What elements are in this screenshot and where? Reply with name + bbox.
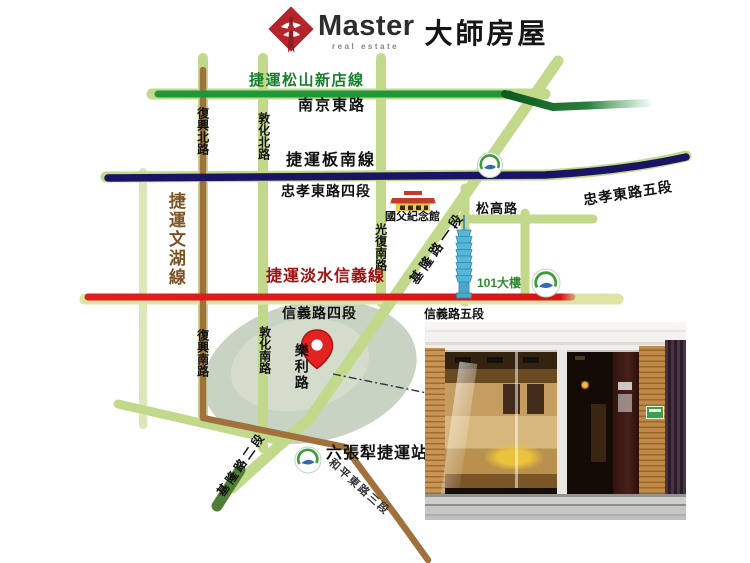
- building-photo: [425, 322, 686, 520]
- label-mrt-tamsui-xinyi: 捷運淡水信義線: [266, 269, 385, 286]
- label-memorial-hall: 國父紀念館: [385, 212, 440, 224]
- label-road-xinyi-4: 信義路四段: [282, 306, 357, 321]
- label-road-fuxing-n: 復興北路: [196, 107, 209, 155]
- label-road-guangfu-s: 光復南路: [374, 223, 387, 271]
- label-road-leli: 樂利路: [294, 343, 309, 391]
- address-plate: [646, 406, 664, 419]
- brand-name-cjk: 大師房屋: [425, 12, 549, 52]
- label-road-dunhua-s: 敦化南路: [258, 326, 271, 374]
- wall-sign: [618, 394, 632, 412]
- photo-storefront-glass: [445, 352, 559, 494]
- photo-brick-left: [425, 348, 445, 498]
- brand-diamond-icon: [268, 6, 314, 56]
- label-road-xinyi-5: 信義路五段: [424, 308, 484, 321]
- photo-dark-door-wall: [613, 352, 639, 494]
- wall-sign: [618, 382, 632, 390]
- glass-reflection-car: [485, 444, 543, 470]
- ceiling-spotlight: [523, 357, 539, 363]
- map-page: Master real estate 大師房屋 捷運松山新店線 南京東路 復興北…: [0, 0, 750, 563]
- mrt-songshan-xindian-line: [158, 94, 648, 107]
- label-road-dunhua-n: 敦化北路: [257, 112, 270, 160]
- corridor-doorway: [591, 404, 606, 462]
- label-liuzhangli-station: 六張犁捷運站: [326, 446, 428, 463]
- photo-brick-right: [639, 346, 665, 498]
- brand-tagline: real estate: [332, 43, 415, 51]
- label-tower-101: 101大樓: [477, 277, 521, 290]
- interior-artwork: [527, 384, 544, 414]
- ceiling-spotlight: [487, 357, 503, 363]
- label-mrt-songshan-xindian: 捷運松山新店線: [249, 73, 365, 89]
- brand-name: Master: [318, 12, 415, 41]
- corridor-lamp: [581, 380, 589, 390]
- photo-white-pillar: [557, 350, 567, 496]
- photo-entrance-corridor: [567, 352, 613, 494]
- label-road-songgao: 松高路: [476, 202, 518, 216]
- label-mrt-bannan: 捷運板南線: [286, 153, 376, 170]
- label-road-nanjing-e: 南京東路: [298, 98, 366, 114]
- label-road-zhongxiao-e4: 忠孝東路四段: [281, 184, 371, 199]
- photo-roller-shutter: [665, 340, 686, 498]
- photo-granite-steps: [425, 494, 686, 520]
- brand-logo: Master real estate 大師房屋: [268, 6, 549, 58]
- corridor-downlight: [575, 356, 585, 360]
- memorial-hall-icon: [390, 191, 436, 212]
- label-mrt-wenhu: 捷運文湖線: [166, 192, 184, 287]
- glass-door-edge: [515, 352, 518, 494]
- label-road-fuxing-s: 復興南路: [196, 329, 209, 377]
